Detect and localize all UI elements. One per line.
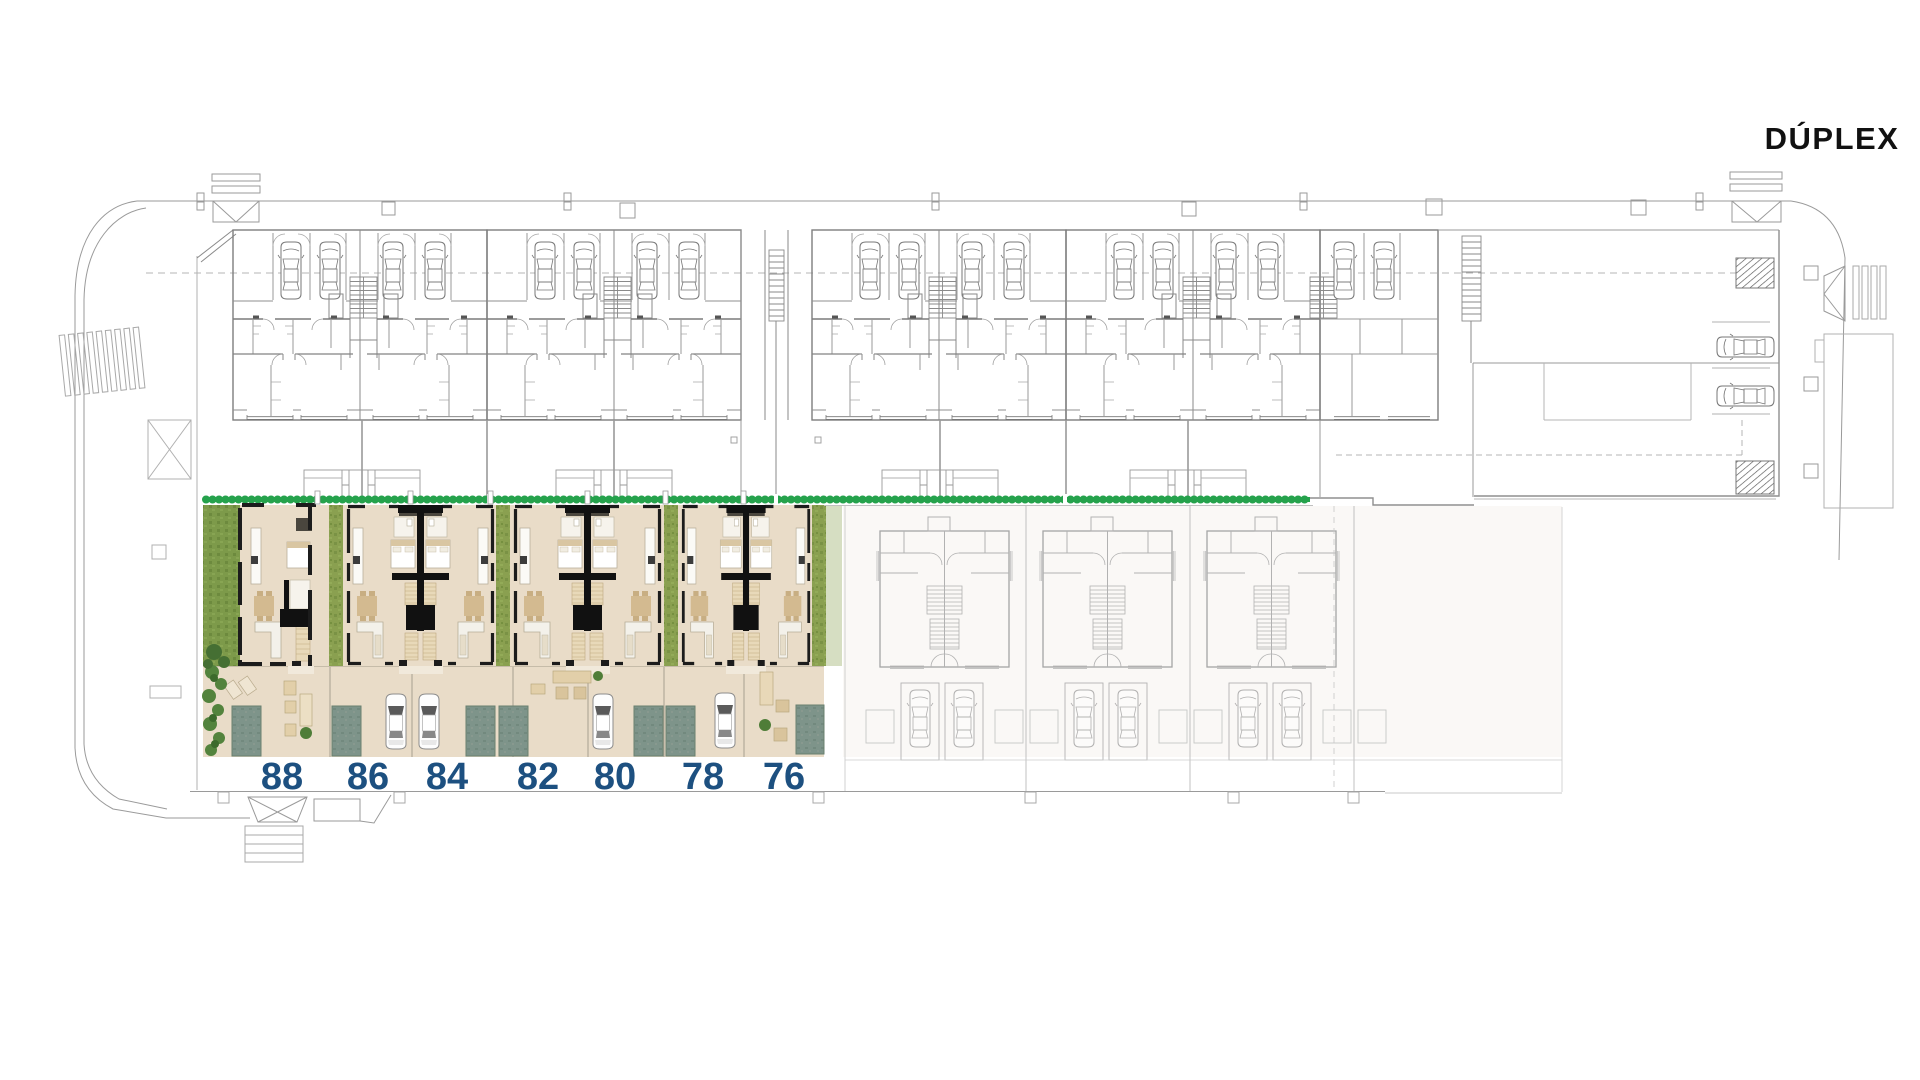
svg-text:80: 80 [594,756,636,798]
svg-text:84: 84 [426,756,468,798]
svg-text:86: 86 [347,756,389,798]
svg-text:76: 76 [763,756,805,798]
svg-text:88: 88 [261,756,303,798]
svg-text:78: 78 [682,756,724,798]
svg-text:82: 82 [517,756,559,798]
svg-text:DÚPLEX: DÚPLEX [1765,120,1900,156]
